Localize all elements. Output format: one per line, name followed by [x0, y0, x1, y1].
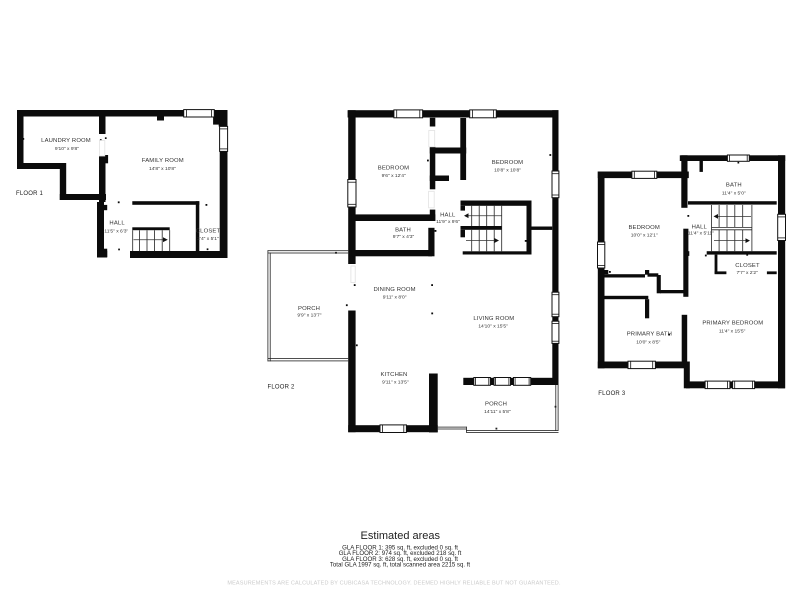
svg-text:FLOOR 1: FLOOR 1 — [16, 191, 44, 197]
svg-text:BATH: BATH — [726, 182, 742, 188]
svg-text:11'5" x 6'3": 11'5" x 6'3" — [104, 229, 128, 235]
svg-text:FLOOR 3: FLOOR 3 — [598, 391, 626, 397]
svg-text:PRIMARY BEDROOM: PRIMARY BEDROOM — [702, 320, 763, 326]
svg-text:9'11" x 13'5": 9'11" x 13'5" — [382, 380, 409, 386]
svg-text:HALL: HALL — [440, 212, 456, 218]
svg-text:10'0" x 8'5": 10'0" x 8'5" — [636, 339, 660, 345]
svg-text:FAMILY ROOM: FAMILY ROOM — [142, 158, 184, 164]
svg-text:LAUNDRY ROOM: LAUNDRY ROOM — [41, 138, 91, 144]
svg-text:Total GLA 1997 sq. ft, total s: Total GLA 1997 sq. ft, total scanned are… — [330, 562, 471, 569]
svg-text:MEASUREMENTS ARE CALCULATED BY: MEASUREMENTS ARE CALCULATED BY CUBICASA … — [227, 580, 561, 586]
svg-text:BEDROOM: BEDROOM — [378, 166, 410, 172]
svg-text:HALL: HALL — [109, 221, 125, 227]
svg-text:9'10" x 9'8": 9'10" x 9'8" — [55, 146, 79, 152]
svg-text:14'8" x 10'8": 14'8" x 10'8" — [149, 166, 176, 172]
svg-text:BATH: BATH — [395, 227, 411, 233]
svg-text:HALL: HALL — [692, 224, 708, 230]
svg-text:9'7" x 4'3": 9'7" x 4'3" — [393, 234, 415, 240]
svg-text:11'9" x 9'6": 11'9" x 9'6" — [436, 219, 460, 225]
svg-text:FLOOR 2: FLOOR 2 — [268, 385, 296, 391]
svg-text:14'11" x 5'8": 14'11" x 5'8" — [484, 409, 511, 415]
svg-text:7'7" x 2'2": 7'7" x 2'2" — [737, 270, 759, 276]
svg-text:PORCH: PORCH — [298, 306, 320, 312]
svg-text:11'4" x 15'5": 11'4" x 15'5" — [719, 328, 746, 334]
svg-text:14'10" x 15'5": 14'10" x 15'5" — [478, 324, 508, 330]
svg-text:9'6" x 12'4": 9'6" x 12'4" — [382, 173, 406, 179]
svg-text:Estimated areas: Estimated areas — [361, 530, 441, 542]
svg-text:DINING ROOM: DINING ROOM — [373, 287, 415, 293]
svg-text:KITCHEN: KITCHEN — [381, 372, 408, 378]
svg-text:BEDROOM: BEDROOM — [492, 160, 524, 166]
svg-text:9'11" x 8'0": 9'11" x 8'0" — [383, 295, 407, 301]
svg-text:PRIMARY BATH: PRIMARY BATH — [627, 332, 672, 338]
svg-text:BEDROOM: BEDROOM — [628, 225, 660, 231]
svg-text:CLOSET: CLOSET — [735, 263, 760, 269]
svg-text:11'4" x 5'0": 11'4" x 5'0" — [722, 190, 746, 196]
svg-text:2'4" x 5'1": 2'4" x 5'1" — [197, 236, 219, 242]
svg-text:PORCH: PORCH — [485, 401, 507, 407]
svg-text:CLOSET: CLOSET — [196, 228, 221, 234]
svg-text:LIVING ROOM: LIVING ROOM — [473, 316, 514, 322]
svg-text:10'8" x 10'8": 10'8" x 10'8" — [494, 167, 521, 173]
svg-text:11'4" x 5'11": 11'4" x 5'11" — [688, 230, 714, 236]
svg-text:9'9" x 13'7": 9'9" x 13'7" — [297, 312, 321, 318]
svg-text:10'0" x 12'1": 10'0" x 12'1" — [631, 232, 658, 238]
